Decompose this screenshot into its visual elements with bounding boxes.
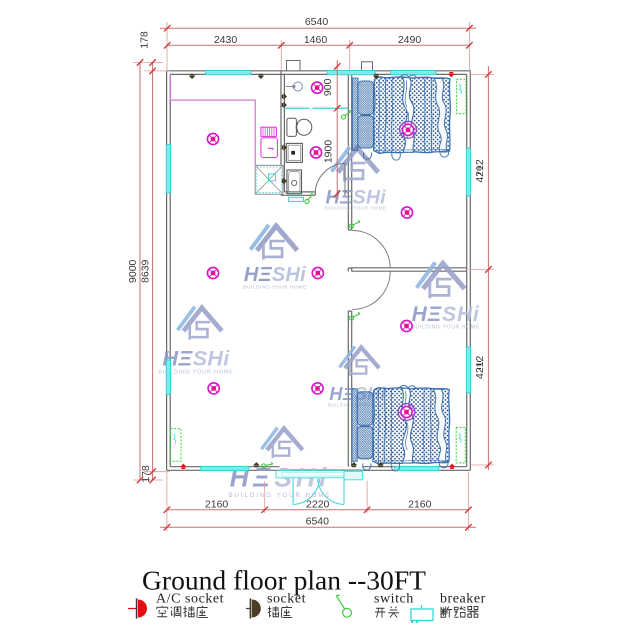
svg-text:178: 178 [140, 465, 152, 483]
svg-text:socket: socket [267, 592, 306, 607]
svg-text:2160: 2160 [408, 498, 432, 510]
svg-text:178: 178 [138, 31, 150, 49]
svg-text:8639: 8639 [140, 259, 152, 283]
svg-text:A/C socket: A/C socket [156, 592, 224, 607]
svg-text:4212: 4212 [474, 159, 486, 183]
svg-text:switch: switch [374, 592, 414, 607]
svg-text:4212: 4212 [474, 355, 486, 379]
svg-text:6540: 6540 [305, 16, 329, 28]
svg-text:9000: 9000 [127, 259, 139, 283]
svg-text:BUILDING YOUR HOME: BUILDING YOUR HOME [325, 206, 387, 211]
svg-text:HΞSHi: HΞSHi [244, 264, 306, 286]
svg-text:HΞSHi: HΞSHi [162, 347, 230, 371]
svg-text:BUILDING YOUR HOME: BUILDING YOUR HOME [411, 324, 479, 330]
svg-text:2430: 2430 [214, 34, 238, 46]
svg-text:2220: 2220 [306, 498, 330, 510]
svg-text:2160: 2160 [205, 498, 229, 510]
svg-text:breaker: breaker [440, 592, 486, 607]
svg-text:BUILDING YOUR HOME: BUILDING YOUR HOME [243, 284, 306, 290]
svg-text:1460: 1460 [304, 34, 328, 46]
svg-text:900: 900 [322, 78, 334, 96]
svg-text:2490: 2490 [398, 34, 422, 46]
svg-text:1900: 1900 [323, 140, 335, 164]
svg-text:HΞSHi: HΞSHi [412, 303, 480, 326]
svg-text:6540: 6540 [306, 515, 330, 527]
